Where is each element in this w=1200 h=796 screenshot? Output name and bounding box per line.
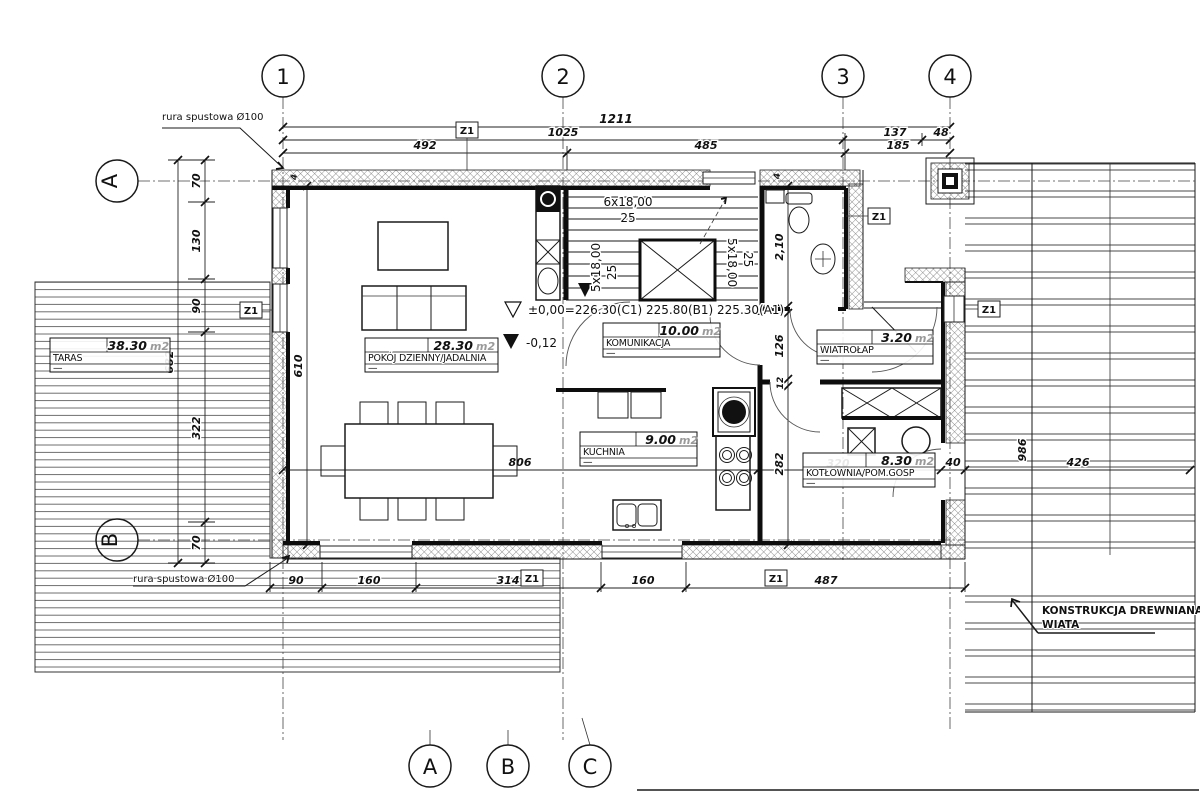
svg-text:70: 70: [190, 173, 203, 189]
svg-text:10.00: 10.00: [659, 323, 699, 338]
svg-text:40: 40: [944, 456, 961, 469]
svg-text:70: 70: [190, 535, 203, 551]
svg-text:48: 48: [932, 126, 949, 139]
svg-text:m2: m2: [915, 332, 934, 345]
svg-text:160: 160: [358, 574, 381, 587]
svg-text:m2: m2: [150, 340, 169, 353]
grid-bubble-4: 4: [929, 55, 971, 97]
svg-text:426: 426: [1066, 456, 1090, 469]
svg-text:160: 160: [632, 574, 655, 587]
grid-bubble-1: 1: [262, 55, 304, 97]
svg-text:610: 610: [292, 354, 305, 377]
svg-text:Z1: Z1: [769, 574, 783, 585]
svg-text:38.30: 38.30: [107, 338, 147, 353]
svg-text:986: 986: [1016, 438, 1029, 461]
svg-text:90: 90: [190, 298, 203, 314]
coffee-table: [378, 222, 448, 270]
stair-right-label: 5x18,00: [725, 238, 739, 287]
grid-bubble-A-bottom: A: [409, 730, 451, 787]
chair: [360, 498, 388, 520]
floor-plan: 1211 1025 137 48 492 485 185 70 130 90 3…: [0, 0, 1200, 796]
svg-text:WIATA: WIATA: [1042, 619, 1080, 631]
svg-text:—: —: [53, 363, 63, 374]
svg-text:12: 12: [776, 377, 786, 390]
room-label-taras: 38.30 m2 TARAS —: [50, 338, 170, 374]
level-symbol-zero: [505, 302, 521, 317]
grid-bubble-B-bottom: B: [487, 730, 529, 787]
room-label-komunikacja: 10.00 m2 KOMUNIKACJA —: [603, 323, 721, 359]
svg-text:Z1: Z1: [460, 126, 474, 137]
svg-text:130: 130: [190, 229, 203, 252]
chair: [398, 498, 426, 520]
grid-bubble-2: 2: [542, 55, 584, 97]
svg-text:m2: m2: [476, 340, 495, 353]
svg-text:B: B: [501, 755, 515, 779]
svg-text:A: A: [98, 173, 122, 188]
svg-text:—: —: [820, 355, 830, 366]
boiler-room-fixtures: [842, 388, 941, 455]
svg-text:28.30: 28.30: [433, 338, 473, 353]
svg-text:485: 485: [694, 139, 718, 152]
svg-text:282: 282: [773, 452, 786, 475]
svg-text:185: 185: [887, 139, 910, 152]
svg-text:137: 137: [884, 126, 907, 139]
svg-text:Z1: Z1: [872, 212, 886, 223]
stair-top-label: 6x18,00: [603, 195, 652, 209]
toilet-tank: [786, 193, 812, 204]
svg-text:492: 492: [413, 139, 437, 152]
carport-structure: [965, 163, 1195, 712]
stool: [631, 392, 661, 418]
room-label-kotlownia: 8.30 m2 KOTŁOWNIA/POM.GOSP —: [803, 453, 935, 489]
chair: [321, 446, 345, 476]
svg-text:—: —: [583, 457, 593, 468]
stool: [598, 392, 628, 418]
level-symbol-terrace: [503, 334, 519, 349]
svg-text:—: —: [368, 363, 378, 374]
chair: [436, 402, 464, 424]
svg-text:2,10: 2,10: [773, 233, 786, 260]
svg-text:KONSTRUKCJA DREWNIANA: KONSTRUKCJA DREWNIANA: [1042, 605, 1200, 617]
stair-left-label: 5x18,00: [589, 243, 603, 292]
svg-text:126: 126: [773, 334, 786, 357]
bath-cabinet: [766, 190, 784, 203]
dim-total-width: 1211: [599, 112, 632, 126]
svg-text:Z1: Z1: [525, 574, 539, 585]
svg-text:m2: m2: [679, 434, 698, 447]
svg-text:A: A: [423, 755, 438, 779]
room-label-pokoj: 28.30 m2 POKÓJ DZIENNY/JADALNIA —: [365, 338, 498, 374]
window-tag: Z1: [765, 570, 787, 586]
wardrobe: [842, 388, 941, 418]
svg-text:8.30: 8.30: [881, 453, 912, 468]
svg-text:314: 314: [497, 574, 520, 587]
svg-text:1: 1: [276, 65, 289, 89]
svg-text:rura spustowa Ø100: rura spustowa Ø100: [162, 111, 263, 123]
svg-text:3.20: 3.20: [881, 330, 912, 345]
svg-text:9.00: 9.00: [645, 432, 676, 447]
svg-text:4: 4: [943, 65, 956, 89]
svg-text:—: —: [806, 478, 816, 489]
svg-text:C: C: [583, 755, 598, 779]
level-text-zero: ±0,00=226.30(C1) 225.80(B1) 225.30(A1): [528, 303, 784, 317]
chimney: [536, 186, 560, 300]
svg-text:KOTŁOWNIA/POM.GOSP: KOTŁOWNIA/POM.GOSP: [806, 468, 915, 479]
svg-text:m2: m2: [915, 455, 934, 468]
svg-text:POKÓJ DZIENNY/JADALNIA: POKÓJ DZIENNY/JADALNIA: [368, 352, 487, 364]
chair: [360, 402, 388, 424]
svg-text:487: 487: [814, 574, 838, 587]
stairs: 6x18,00 25 5x18,00 25 5x18,00 25: [566, 195, 758, 300]
sofa: [362, 286, 466, 330]
svg-text:25: 25: [741, 252, 755, 267]
level-text-terrace: -0,12: [526, 336, 557, 350]
dining-table: [345, 424, 493, 498]
svg-text:m2: m2: [702, 325, 721, 338]
room-label-kuchnia: 9.00 m2 KUCHNIA —: [580, 432, 698, 468]
svg-text:B: B: [98, 533, 122, 547]
chair: [398, 402, 426, 424]
svg-text:Z1: Z1: [244, 306, 258, 317]
svg-text:806: 806: [509, 456, 532, 469]
svg-text:rura spustowa Ø100: rura spustowa Ø100: [133, 573, 234, 585]
svg-text:25: 25: [620, 211, 635, 225]
grid-bubble-C-bottom: C: [569, 718, 611, 787]
svg-text:322: 322: [190, 416, 203, 439]
svg-text:90: 90: [288, 574, 304, 587]
svg-text:3: 3: [836, 65, 849, 89]
svg-text:25: 25: [605, 265, 619, 280]
room-label-wiatrolap: 3.20 m2 WIATROŁAP —: [817, 330, 934, 366]
interior-walls: [566, 186, 941, 545]
svg-text:2: 2: [556, 65, 569, 89]
svg-text:1025: 1025: [548, 126, 579, 139]
column-grid4: [926, 158, 974, 204]
oven-icon: [722, 400, 746, 424]
svg-text:Z1: Z1: [982, 305, 996, 316]
window-tag: Z1: [521, 570, 543, 586]
grid-bubble-A-left: A: [96, 160, 138, 202]
water-tank: [902, 427, 930, 455]
svg-text:—: —: [606, 348, 616, 359]
grid-bubble-3: 3: [822, 55, 864, 97]
toilet-bowl: [789, 207, 809, 233]
svg-text:KOMUNIKACJA: KOMUNIKACJA: [606, 338, 671, 349]
window-tag: Z1: [456, 122, 478, 170]
chair: [436, 498, 464, 520]
